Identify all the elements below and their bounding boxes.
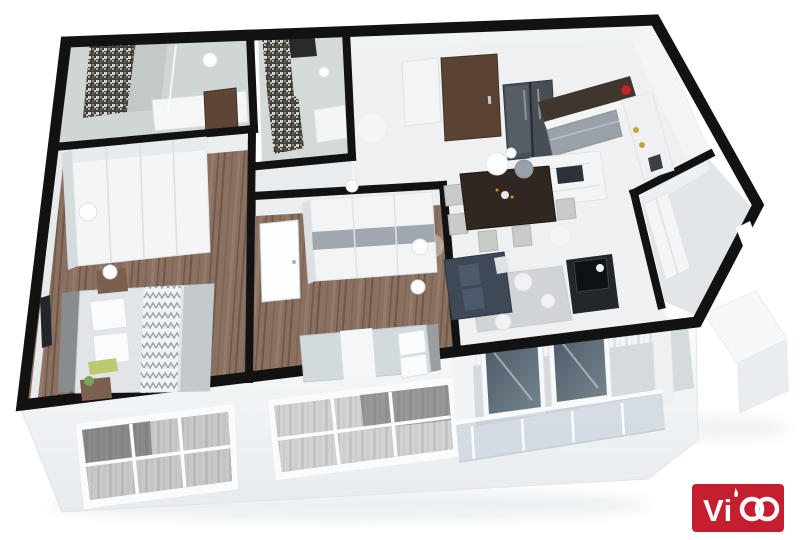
tv-console — [566, 254, 619, 314]
jar — [639, 142, 645, 148]
pillow — [400, 354, 428, 378]
pillow — [398, 330, 426, 356]
wall-tv — [40, 295, 52, 348]
sphere-lamp — [412, 239, 428, 255]
pouf — [514, 273, 532, 291]
sofa-cushion — [458, 263, 481, 287]
vase — [596, 264, 604, 272]
sphere-lamp — [319, 67, 329, 77]
double-bed — [58, 284, 214, 393]
sphere-lamp — [79, 203, 97, 221]
entry-door — [441, 54, 501, 141]
sphere-lamp — [346, 180, 358, 192]
tv-screen — [574, 258, 609, 292]
bed-runner — [140, 285, 181, 393]
floor-plan-render: Isometric 3D render of a two-bedroom apa… — [0, 0, 800, 540]
sofa — [444, 252, 512, 320]
pouf — [541, 294, 555, 308]
door-handle — [488, 96, 492, 104]
vico-logo: Vi — [692, 484, 784, 532]
shoe-cabinet — [402, 58, 441, 126]
dining-table — [460, 166, 556, 230]
red-kettle — [621, 85, 631, 95]
laptop — [556, 165, 584, 184]
table-dish — [501, 191, 509, 199]
plant — [84, 376, 94, 386]
pouf — [495, 314, 511, 330]
table-lamp — [103, 265, 117, 279]
pillow — [90, 298, 127, 331]
foot-blanket — [180, 284, 214, 392]
logo-text: Vi — [703, 493, 733, 528]
jar — [633, 127, 639, 133]
candle — [496, 189, 499, 192]
white-blanket — [340, 328, 376, 381]
candle — [511, 196, 514, 199]
sphere-lamp — [203, 53, 217, 67]
sphere-lamp — [411, 280, 425, 294]
sofa-cushion — [462, 287, 485, 311]
door-handle — [292, 260, 296, 264]
vanity — [314, 105, 347, 143]
mosaic-wall-lower — [268, 96, 304, 154]
